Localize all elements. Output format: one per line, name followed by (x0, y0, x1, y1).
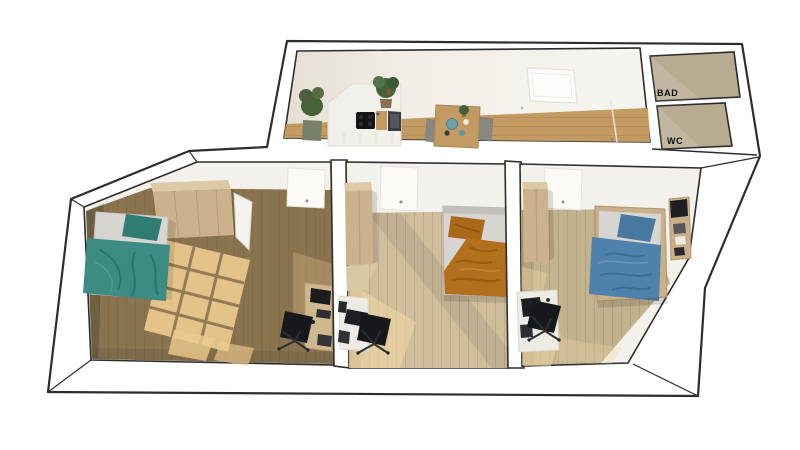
table-cup-dark (444, 130, 449, 135)
bedroom3-desk-cup (546, 298, 550, 302)
table-plant (459, 105, 469, 115)
bedroom3-shelf-paper (675, 236, 686, 245)
bedroom3-wardrobe-top (522, 182, 548, 189)
kitchen-sink-basin (390, 114, 399, 128)
bedroom3-shelf-laptop (670, 199, 688, 218)
bedroom2-lower-unit (346, 265, 369, 291)
cooktop (356, 112, 375, 129)
table-bowl-teal (459, 130, 465, 136)
cooktop-burner (359, 122, 363, 126)
bedroom2-chair-seat (357, 313, 391, 346)
bedroom2-wardrobe-top (344, 182, 372, 191)
plant-stool (302, 120, 322, 141)
bedroom2-chair-wheel (356, 351, 359, 354)
bedroom2-wardrobe-shadow (372, 190, 378, 264)
bedroom1-desk-laptop (310, 288, 331, 305)
floor-plant-foliage-2 (299, 89, 313, 103)
bathroom-label: BAD (657, 88, 678, 98)
counter-plant-pot (380, 99, 392, 108)
bedroom3-door-handle (562, 201, 565, 204)
bedroom3-chair-wheel (527, 338, 530, 341)
bed3-pillow (617, 214, 656, 242)
kitchen-wall-socket (521, 107, 524, 110)
cooktop-burner (368, 115, 372, 119)
bedroom2-chair-wheel (386, 351, 389, 354)
bed3-blanket (589, 237, 661, 301)
bedroom2-desk-item-2 (338, 330, 350, 344)
apartment-3d-floorplan: BAD WC (0, 0, 800, 450)
bedroom2-door-handle (400, 201, 403, 204)
kitchen-east-door-handle (611, 138, 614, 141)
bedroom3-wardrobe-shadow (548, 189, 554, 261)
table-plate-teal (447, 119, 458, 130)
faucet (377, 113, 380, 116)
cooktop-burner (368, 122, 372, 126)
bedroom1-chair-wheel (277, 347, 280, 350)
bedroom1-desk-papers (317, 334, 332, 347)
counter-plant-foliage-2 (373, 76, 385, 88)
bedroom3-shelf-item-2 (674, 247, 685, 256)
bedroom2-door (380, 166, 418, 211)
bedroom2-desk-item (338, 301, 347, 313)
table-cup-white (463, 119, 468, 124)
cooktop-burner (359, 115, 363, 119)
counter-plant-foliage-3 (387, 77, 399, 89)
bedroom3-shelf-item (673, 223, 686, 234)
bedroom3-chair-wheel (557, 338, 560, 341)
wc-label: WC (667, 136, 683, 146)
bedroom1-door-handle (306, 200, 309, 203)
counter-plant-accent (386, 89, 392, 95)
floor-plant-foliage-3 (312, 87, 324, 99)
bedroom1-chair-wheel (306, 348, 309, 351)
